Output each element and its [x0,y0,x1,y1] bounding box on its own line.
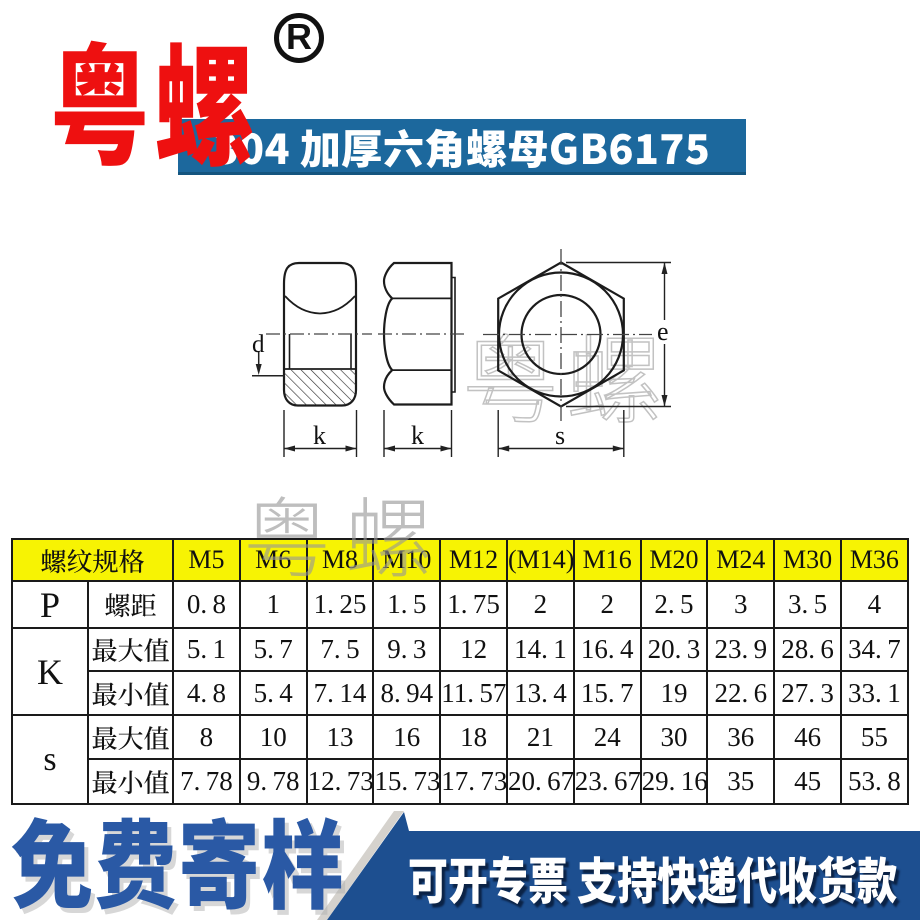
svg-text:e: e [657,317,669,346]
svg-text:s: s [555,421,565,450]
svg-text:k: k [411,421,424,450]
svg-text:d: d [252,331,265,358]
svg-text:k: k [313,421,326,450]
